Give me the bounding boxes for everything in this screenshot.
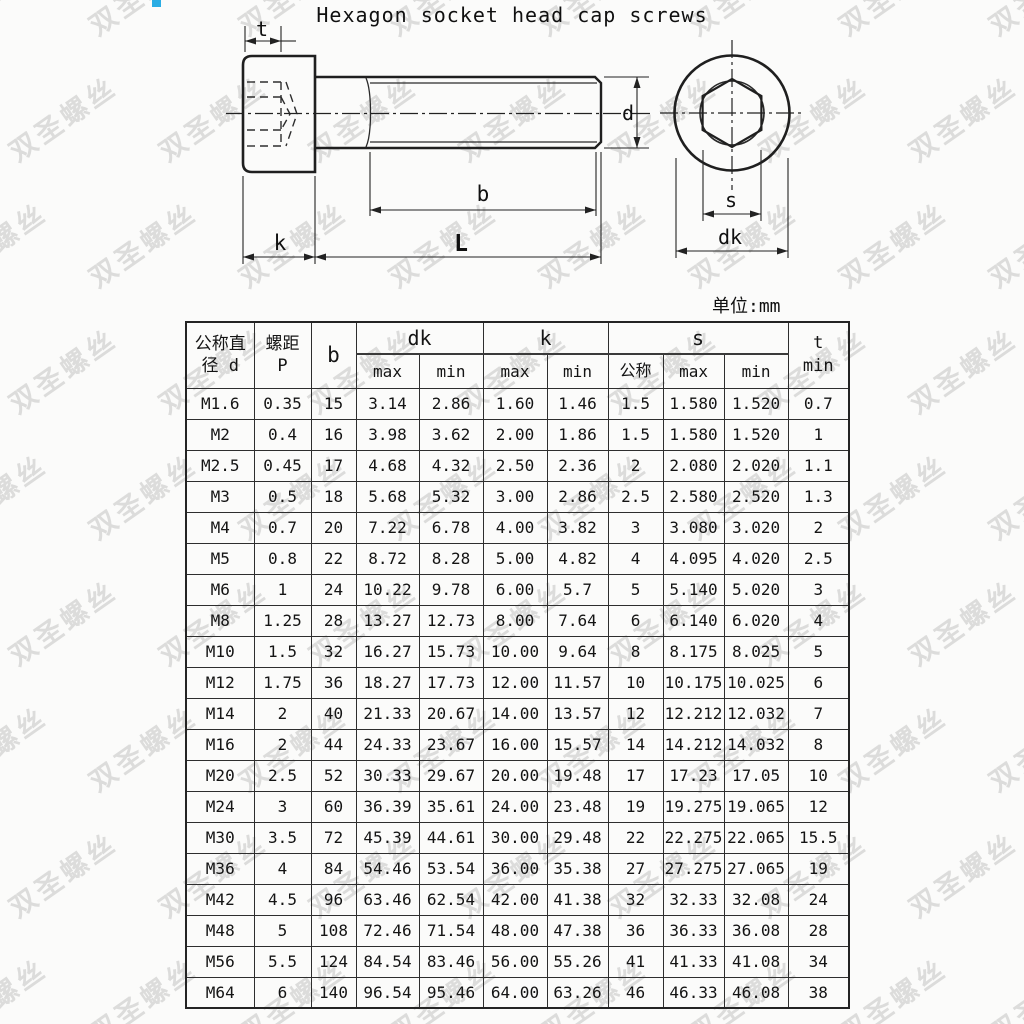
table-cell: 1 (788, 419, 849, 450)
table-cell: 1.520 (724, 419, 788, 450)
table-cell: 16.00 (483, 729, 547, 760)
table-cell: 29.67 (419, 760, 483, 791)
table-cell: 8.025 (724, 636, 788, 667)
table-cell: 1.75 (254, 667, 311, 698)
table-cell: 11.57 (547, 667, 608, 698)
table-cell: 1.25 (254, 605, 311, 636)
table-cell: 8 (608, 636, 663, 667)
table-cell: 52 (311, 760, 356, 791)
table-cell: 18.27 (356, 667, 419, 698)
table-cell: 1 (254, 574, 311, 605)
table-cell: 5.32 (419, 481, 483, 512)
table-cell: 84.54 (356, 946, 419, 977)
table-cell: 32.33 (663, 884, 724, 915)
table-cell: 24 (788, 884, 849, 915)
table-cell: 9.64 (547, 636, 608, 667)
table-cell: 36.08 (724, 915, 788, 946)
table-cell: 27.065 (724, 853, 788, 884)
table-cell: 96 (311, 884, 356, 915)
table-cell: 10 (788, 760, 849, 791)
table-cell: 19.065 (724, 791, 788, 822)
technical-drawing: t d b k (0, 0, 1024, 320)
table-cell: 5.5 (254, 946, 311, 977)
table-row: M2436036.3935.6124.0023.481919.27519.065… (186, 791, 849, 822)
thread-minor-lines (366, 78, 597, 147)
table-cell: 27 (608, 853, 663, 884)
table-row: M424.59663.4662.5442.0041.383232.3332.08… (186, 884, 849, 915)
table-cell: 3.020 (724, 512, 788, 543)
table-cell: 2.520 (724, 481, 788, 512)
table-cell: 55.26 (547, 946, 608, 977)
table-cell: 12.212 (663, 698, 724, 729)
watermark-text: 双圣螺丝 (0, 570, 124, 673)
table-cell: 8 (788, 729, 849, 760)
table-cell: M20 (186, 760, 254, 791)
table-cell: 2.86 (547, 481, 608, 512)
table-cell: 8.28 (419, 543, 483, 574)
table-cell: 2.5 (608, 481, 663, 512)
header-t: t min (788, 322, 849, 388)
table-cell: 4 (788, 605, 849, 636)
table-cell: 3 (254, 791, 311, 822)
datasheet-page: 双圣螺丝双圣螺丝双圣螺丝双圣螺丝双圣螺丝双圣螺丝双圣螺丝双圣螺丝双圣螺丝双圣螺丝… (0, 0, 1024, 1024)
header-group-dk: dk (356, 322, 483, 354)
table-cell: 41.08 (724, 946, 788, 977)
table-cell: 36 (608, 915, 663, 946)
table-cell: 9.78 (419, 574, 483, 605)
table-cell: 23.67 (419, 729, 483, 760)
table-cell: 0.7 (254, 512, 311, 543)
table-cell: 45.39 (356, 822, 419, 853)
table-cell: 15.73 (419, 636, 483, 667)
header-s-nominal: 公称 (608, 354, 663, 388)
table-cell: 12.032 (724, 698, 788, 729)
table-cell: 19.48 (547, 760, 608, 791)
dimension-L-label: L (454, 231, 468, 257)
table-cell: 5.020 (724, 574, 788, 605)
table-cell: 3.98 (356, 419, 419, 450)
table-cell: 5 (608, 574, 663, 605)
table-cell: 6.78 (419, 512, 483, 543)
table-cell: 41.38 (547, 884, 608, 915)
table-cell: 32 (311, 636, 356, 667)
table-cell: 10.00 (483, 636, 547, 667)
table-cell: 48.00 (483, 915, 547, 946)
table-row: M202.55230.3329.6720.0019.481717.2317.05… (186, 760, 849, 791)
watermark-text: 双圣螺丝 (900, 570, 1024, 673)
screw-end-view: s dk (660, 40, 804, 258)
table-cell: 1.5 (254, 636, 311, 667)
table-cell: 2.86 (419, 388, 483, 419)
table-cell: 7.64 (547, 605, 608, 636)
table-cell: 1.580 (663, 419, 724, 450)
table-cell: 0.7 (788, 388, 849, 419)
table-cell: 44.61 (419, 822, 483, 853)
header-group-k: k (483, 322, 608, 354)
table-cell: 44 (311, 729, 356, 760)
table-cell: 30.33 (356, 760, 419, 791)
table-cell: M2.5 (186, 450, 254, 481)
table-cell: 46.08 (724, 977, 788, 1008)
table-cell: 3.080 (663, 512, 724, 543)
table-cell: 84 (311, 853, 356, 884)
table-cell: 63.46 (356, 884, 419, 915)
table-cell: 60 (311, 791, 356, 822)
table-cell: 22.065 (724, 822, 788, 853)
table-cell: 20.67 (419, 698, 483, 729)
table-cell: 2.36 (547, 450, 608, 481)
table-cell: 0.4 (254, 419, 311, 450)
table-cell: 24 (311, 574, 356, 605)
header-s-min: min (724, 354, 788, 388)
table-cell: 14.00 (483, 698, 547, 729)
table-cell: 18 (311, 481, 356, 512)
dimension-d-label: d (622, 101, 634, 125)
table-cell: 20 (311, 512, 356, 543)
table-cell: 53.54 (419, 853, 483, 884)
table-row: M121.753618.2717.7312.0011.571010.17510.… (186, 667, 849, 698)
table-cell: 7.22 (356, 512, 419, 543)
table-cell: 4.00 (483, 512, 547, 543)
table-cell: 5.68 (356, 481, 419, 512)
table-cell: 6 (608, 605, 663, 636)
header-nominal-diameter: 公称直 径 d (186, 322, 254, 388)
table-cell: 17.73 (419, 667, 483, 698)
table-cell: 1.5 (608, 419, 663, 450)
screw-side-view: t d b k (226, 17, 652, 264)
table-cell: 14.032 (724, 729, 788, 760)
table-cell: 1.46 (547, 388, 608, 419)
table-cell: 36.39 (356, 791, 419, 822)
dimension-table: 公称直 径 d 螺距 P b dk k s t min max min max … (185, 321, 850, 1009)
table-cell: 22 (608, 822, 663, 853)
dimension-s-label: s (725, 188, 737, 212)
table-cell: 24.33 (356, 729, 419, 760)
table-cell: 17.05 (724, 760, 788, 791)
table-cell: 6.020 (724, 605, 788, 636)
table-cell: 24.00 (483, 791, 547, 822)
table-cell: 36 (311, 667, 356, 698)
table-cell: 4.82 (547, 543, 608, 574)
dimension-dk-label: dk (718, 225, 742, 249)
table-cell: 2.080 (663, 450, 724, 481)
table-cell: M10 (186, 636, 254, 667)
table-row: M40.7207.226.784.003.8233.0803.0202 (186, 512, 849, 543)
watermark-text: 双圣螺丝 (0, 948, 54, 1024)
table-cell: 34 (788, 946, 849, 977)
table-cell: 4.020 (724, 543, 788, 574)
table-cell: M3 (186, 481, 254, 512)
header-k-min: min (547, 354, 608, 388)
watermark-text: 双圣螺丝 (980, 696, 1024, 799)
table-cell: 10.025 (724, 667, 788, 698)
table-cell: 64.00 (483, 977, 547, 1008)
table-cell: 3 (608, 512, 663, 543)
table-cell: 4.5 (254, 884, 311, 915)
table-row: M64614096.5495.4664.0063.264646.3346.083… (186, 977, 849, 1008)
table-cell: 22 (311, 543, 356, 574)
table-cell: M24 (186, 791, 254, 822)
table-cell: 56.00 (483, 946, 547, 977)
header-b: b (311, 322, 356, 388)
end-view-centerlines (660, 40, 804, 190)
table-cell: 46.33 (663, 977, 724, 1008)
header-dk-max: max (356, 354, 419, 388)
table-body: M1.60.35153.142.861.601.461.51.5801.5200… (186, 388, 849, 1008)
table-cell: 3 (788, 574, 849, 605)
table-cell: 2.020 (724, 450, 788, 481)
table-cell: 19 (608, 791, 663, 822)
table-cell: 5 (254, 915, 311, 946)
table-cell: 3.14 (356, 388, 419, 419)
table-cell: 36.00 (483, 853, 547, 884)
table-cell: 12 (608, 698, 663, 729)
watermark-text: 双圣螺丝 (0, 696, 54, 799)
table-cell: M16 (186, 729, 254, 760)
table-cell: 62.54 (419, 884, 483, 915)
table-row: M612410.229.786.005.755.1405.0203 (186, 574, 849, 605)
table-cell: M30 (186, 822, 254, 853)
table-row: M101.53216.2715.7310.009.6488.1758.0255 (186, 636, 849, 667)
table-cell: 8.72 (356, 543, 419, 574)
table-cell: 2 (608, 450, 663, 481)
table-cell: 47.38 (547, 915, 608, 946)
table-cell: 10.22 (356, 574, 419, 605)
table-cell: 40 (311, 698, 356, 729)
table-cell: 22.275 (663, 822, 724, 853)
table-cell: M8 (186, 605, 254, 636)
table-cell: 16 (311, 419, 356, 450)
table-cell: 2.5 (788, 543, 849, 574)
table-cell: M48 (186, 915, 254, 946)
table-cell: 12 (788, 791, 849, 822)
table-cell: 46 (608, 977, 663, 1008)
table-row: M50.8228.728.285.004.8244.0954.0202.5 (186, 543, 849, 574)
table-cell: M64 (186, 977, 254, 1008)
screw-shank-outline (315, 77, 601, 148)
table-cell: 32 (608, 884, 663, 915)
header-group-s: s (608, 322, 788, 354)
watermark-text: 双圣螺丝 (980, 948, 1024, 1024)
table-cell: 0.8 (254, 543, 311, 574)
table-cell: 2.50 (483, 450, 547, 481)
table-cell: 12.73 (419, 605, 483, 636)
table-cell: 2.580 (663, 481, 724, 512)
table-cell: 6.140 (663, 605, 724, 636)
table-cell: 5.7 (547, 574, 608, 605)
table-cell: 35.61 (419, 791, 483, 822)
table-row: M3648454.4653.5436.0035.382727.27527.065… (186, 853, 849, 884)
table-row: M1624424.3323.6716.0015.571414.21214.032… (186, 729, 849, 760)
table-cell: M14 (186, 698, 254, 729)
table-cell: 28 (788, 915, 849, 946)
table-cell: 1.5 (608, 388, 663, 419)
table-cell: 1.60 (483, 388, 547, 419)
table-cell: 4 (254, 853, 311, 884)
table-cell: 23.48 (547, 791, 608, 822)
table-cell: 17 (311, 450, 356, 481)
table-cell: 7 (788, 698, 849, 729)
header-dk-min: min (419, 354, 483, 388)
table-cell: 1.1 (788, 450, 849, 481)
table-row: M2.50.45174.684.322.502.3622.0802.0201.1 (186, 450, 849, 481)
table-cell: 6.00 (483, 574, 547, 605)
table-cell: 13.57 (547, 698, 608, 729)
table-cell: 140 (311, 977, 356, 1008)
table-cell: 71.54 (419, 915, 483, 946)
table-cell: 124 (311, 946, 356, 977)
table-cell: 95.46 (419, 977, 483, 1008)
header-s-max: max (663, 354, 724, 388)
table-cell: 1.3 (788, 481, 849, 512)
table-cell: 10 (608, 667, 663, 698)
table-cell: 3.5 (254, 822, 311, 853)
table-cell: 14.212 (663, 729, 724, 760)
watermark-text: 双圣螺丝 (0, 444, 54, 547)
table-cell: 19.275 (663, 791, 724, 822)
table-cell: 17.23 (663, 760, 724, 791)
header-k-max: max (483, 354, 547, 388)
table-cell: 29.48 (547, 822, 608, 853)
table-cell: M42 (186, 884, 254, 915)
table-cell: 54.46 (356, 853, 419, 884)
table-cell: 2 (254, 698, 311, 729)
table-cell: M12 (186, 667, 254, 698)
table-cell: 36.33 (663, 915, 724, 946)
table-cell: 30.00 (483, 822, 547, 853)
unit-label: 单位:mm (712, 292, 781, 318)
table-cell: 6 (254, 977, 311, 1008)
table-cell: 2.5 (254, 760, 311, 791)
table-cell: 5.00 (483, 543, 547, 574)
table-cell: 0.5 (254, 481, 311, 512)
table-cell: 72.46 (356, 915, 419, 946)
table-cell: M6 (186, 574, 254, 605)
table-cell: 0.45 (254, 450, 311, 481)
dimension-b-label: b (477, 182, 490, 206)
table-cell: 42.00 (483, 884, 547, 915)
table-cell: 5 (788, 636, 849, 667)
table-cell: M4 (186, 512, 254, 543)
table-cell: 20.00 (483, 760, 547, 791)
table-cell: M36 (186, 853, 254, 884)
table-cell: 13.27 (356, 605, 419, 636)
table-cell: M2 (186, 419, 254, 450)
table-row: M48510872.4671.5448.0047.383636.3336.082… (186, 915, 849, 946)
table-cell: 4.68 (356, 450, 419, 481)
table-cell: 8.00 (483, 605, 547, 636)
table-cell: 3.62 (419, 419, 483, 450)
table-cell: 4.095 (663, 543, 724, 574)
table-cell: M56 (186, 946, 254, 977)
table-cell: 4 (608, 543, 663, 574)
table-cell: 15.5 (788, 822, 849, 853)
table-cell: 32.08 (724, 884, 788, 915)
table-cell: 2.00 (483, 419, 547, 450)
table-cell: 35.38 (547, 853, 608, 884)
watermark-text: 双圣螺丝 (0, 822, 124, 925)
watermark-text: 双圣螺丝 (900, 318, 1024, 421)
table-cell: 1.520 (724, 388, 788, 419)
table-cell: 38 (788, 977, 849, 1008)
header-pitch: 螺距 P (254, 322, 311, 388)
table-cell: 12.00 (483, 667, 547, 698)
table-cell: 27.275 (663, 853, 724, 884)
table-cell: 2 (788, 512, 849, 543)
table-cell: 16.27 (356, 636, 419, 667)
table-cell: 28 (311, 605, 356, 636)
table-cell: 96.54 (356, 977, 419, 1008)
table-cell: 1.86 (547, 419, 608, 450)
table-cell: 15 (311, 388, 356, 419)
table-row: M1424021.3320.6714.0013.571212.21212.032… (186, 698, 849, 729)
watermark-text: 双圣螺丝 (980, 444, 1024, 547)
table-cell: 63.26 (547, 977, 608, 1008)
table-header: 公称直 径 d 螺距 P b dk k s t min max min max … (186, 322, 849, 388)
table-row: M303.57245.3944.6130.0029.482222.27522.0… (186, 822, 849, 853)
table-cell: 10.175 (663, 667, 724, 698)
table-cell: 72 (311, 822, 356, 853)
table-cell: 21.33 (356, 698, 419, 729)
table-row: M30.5185.685.323.002.862.52.5802.5201.3 (186, 481, 849, 512)
table-cell: 41 (608, 946, 663, 977)
dimension-k-label: k (274, 231, 287, 255)
table-cell: 19 (788, 853, 849, 884)
blue-corner-mark (152, 0, 161, 7)
table-cell: 83.46 (419, 946, 483, 977)
table-row: M1.60.35153.142.861.601.461.51.5801.5200… (186, 388, 849, 419)
table-cell: 17 (608, 760, 663, 791)
watermark-text: 双圣螺丝 (900, 822, 1024, 925)
table-cell: 108 (311, 915, 356, 946)
watermark-text: 双圣螺丝 (0, 318, 124, 421)
table-cell: 14 (608, 729, 663, 760)
table-cell: 4.32 (419, 450, 483, 481)
table-cell: 0.35 (254, 388, 311, 419)
table-cell: M5 (186, 543, 254, 574)
table-cell: 5.140 (663, 574, 724, 605)
table-cell: 3.00 (483, 481, 547, 512)
dimension-t (245, 26, 296, 52)
table-cell: 1.580 (663, 388, 724, 419)
table-cell: 41.33 (663, 946, 724, 977)
table-cell: 6 (788, 667, 849, 698)
table-row: M565.512484.5483.4656.0055.264141.3341.0… (186, 946, 849, 977)
table-cell: M1.6 (186, 388, 254, 419)
table-cell: 3.82 (547, 512, 608, 543)
table-cell: 8.175 (663, 636, 724, 667)
table-row: M81.252813.2712.738.007.6466.1406.0204 (186, 605, 849, 636)
table-row: M20.4163.983.622.001.861.51.5801.5201 (186, 419, 849, 450)
table-cell: 2 (254, 729, 311, 760)
table-cell: 15.57 (547, 729, 608, 760)
